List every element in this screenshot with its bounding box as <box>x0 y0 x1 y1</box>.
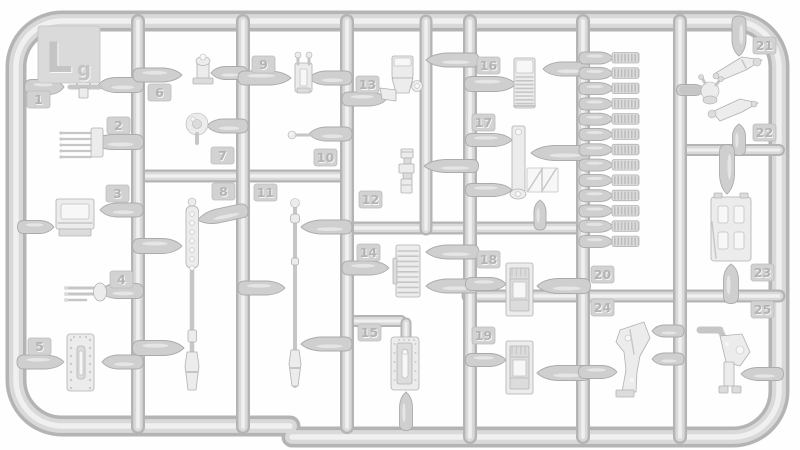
svg-text:9: 9 <box>259 57 268 72</box>
sprue-gate <box>652 353 684 365</box>
sprue-gate <box>720 145 735 195</box>
part-7 <box>186 113 208 143</box>
sprue-gate <box>652 325 684 337</box>
svg-text:22: 22 <box>756 125 773 140</box>
part-number-tab-7: 77 <box>211 147 234 164</box>
part-9 <box>295 52 312 93</box>
part-number-tab-19: 1919 <box>472 327 495 344</box>
svg-text:7: 7 <box>218 148 227 163</box>
sprue-gate <box>309 71 352 85</box>
svg-text:3: 3 <box>113 186 122 201</box>
svg-text:19: 19 <box>475 328 492 343</box>
svg-text:13: 13 <box>359 77 376 92</box>
svg-text:5: 5 <box>35 339 44 354</box>
part-number-tab-15: 1515 <box>358 324 381 341</box>
part-number-tab-11: 1111 <box>254 184 277 201</box>
svg-text:8: 8 <box>219 184 228 199</box>
svg-text:20: 20 <box>594 267 612 282</box>
sprue-gate <box>579 236 613 248</box>
svg-text:15: 15 <box>361 325 378 340</box>
part-number-tab-2: 22 <box>107 117 130 134</box>
svg-text:10: 10 <box>317 150 335 165</box>
sprue-gate <box>537 279 591 294</box>
sprue-gate <box>579 205 613 217</box>
part-19 <box>506 341 533 394</box>
sprue-gate <box>466 184 513 197</box>
part-24 <box>616 322 650 397</box>
sprue-gate <box>102 355 143 369</box>
sprue-gate <box>466 354 507 367</box>
part-number-tab-5: 55 <box>28 338 51 355</box>
svg-text:18: 18 <box>480 252 497 267</box>
part-2 <box>59 128 103 159</box>
sprue-svg: 1122334455667788991010111112121313141415… <box>0 0 800 450</box>
sprue-gate <box>579 144 613 156</box>
sprue-gate <box>741 368 784 381</box>
sprue-gate <box>579 98 613 110</box>
part-18 <box>506 263 533 316</box>
sprue-gate <box>579 190 613 202</box>
part-number-tab-17: 1717 <box>472 114 495 131</box>
sprue-gate <box>579 83 613 95</box>
sprue-gate <box>342 261 389 275</box>
part-number-tab-18: 1818 <box>477 251 500 268</box>
svg-text:24: 24 <box>594 300 612 315</box>
part-3 <box>56 199 94 236</box>
part-number-tab-13: 1313 <box>356 76 379 93</box>
part-number-tab-12: 1212 <box>359 191 382 208</box>
part-number-tab-20: 2020 <box>591 266 614 283</box>
sprue-gate <box>17 355 64 369</box>
sprue-gate <box>207 119 248 133</box>
sprue-gate <box>466 134 513 147</box>
sprue-gate <box>238 281 285 295</box>
sprue-letter-tab: LLgg <box>38 26 100 83</box>
part-8 <box>185 198 199 390</box>
part-number-tab-16: 1616 <box>477 57 500 74</box>
part-number-tab-10: 1010 <box>314 149 337 166</box>
sprue-gate <box>579 159 613 171</box>
part-23 <box>711 193 751 261</box>
svg-text:g: g <box>77 57 91 81</box>
svg-text:4: 4 <box>117 272 126 287</box>
part-6 <box>193 54 213 84</box>
sprue-gate <box>579 67 613 79</box>
part-17 <box>510 126 558 199</box>
sprue-gate <box>133 68 182 82</box>
sprue-gate <box>465 77 517 92</box>
part-ball-mount <box>684 75 724 105</box>
sprue-gate <box>309 127 352 141</box>
sprue-gate <box>133 341 185 356</box>
svg-text:23: 23 <box>754 265 771 280</box>
sprue-gate <box>426 245 479 259</box>
part-11 <box>289 199 301 387</box>
svg-text:12: 12 <box>362 192 379 207</box>
part-number-tab-21: 2121 <box>753 37 776 54</box>
svg-text:2: 2 <box>114 118 123 133</box>
part-number-tab-22: 2222 <box>753 124 776 141</box>
sprue-gate <box>426 53 479 67</box>
sprue-gate <box>133 239 183 254</box>
svg-text:16: 16 <box>480 58 498 73</box>
part-13 <box>380 56 423 101</box>
sprue-gate <box>724 264 739 304</box>
sprue-gate <box>342 92 387 106</box>
part-number-tab-25: 2525 <box>751 301 774 318</box>
svg-text:17: 17 <box>475 115 492 130</box>
part-10 <box>288 131 311 139</box>
sprue-gate <box>534 200 546 230</box>
svg-text:14: 14 <box>360 245 378 260</box>
part-5 <box>67 334 94 391</box>
part-number-tab-9: 99 <box>252 56 275 73</box>
svg-text:1: 1 <box>34 92 43 107</box>
part-number-tab-3: 33 <box>106 185 129 202</box>
part-number-tab-14: 1414 <box>357 244 380 261</box>
part-14 <box>393 245 420 297</box>
sprue-diagram: 1122334455667788991010111112121313141415… <box>0 0 800 450</box>
part-number-tab-1: 11 <box>27 91 50 108</box>
svg-text:6: 6 <box>155 85 164 100</box>
part-number-tab-24: 2424 <box>591 299 614 316</box>
sprue-gate <box>466 278 507 291</box>
svg-text:21: 21 <box>756 38 773 53</box>
sprue-gate <box>301 337 352 351</box>
part-number-tab-6: 66 <box>148 84 171 101</box>
sprue-gate <box>579 220 613 232</box>
part-number-tab-4: 44 <box>110 271 133 288</box>
part-15 <box>391 337 419 390</box>
sprue-gate <box>579 52 613 64</box>
part-number-tab-8: 88 <box>212 183 235 200</box>
sprue-gate <box>301 220 352 234</box>
sprue-gate <box>579 113 613 125</box>
part-25 <box>700 330 750 393</box>
svg-text:L: L <box>46 33 73 82</box>
svg-text:11: 11 <box>257 185 274 200</box>
part-12 <box>399 149 414 193</box>
sprue-gate <box>579 129 613 141</box>
sprue-gate <box>579 174 613 186</box>
sprue-gate <box>424 160 479 173</box>
svg-text:25: 25 <box>754 302 771 317</box>
part-4 <box>64 283 107 302</box>
part-number-tab-23: 2323 <box>751 264 774 281</box>
sprue-gate <box>100 203 143 217</box>
part-16 <box>514 58 535 108</box>
sprue-gate <box>732 16 746 56</box>
part-20 <box>612 53 640 247</box>
sprue-gate <box>579 366 618 379</box>
sprue-gate <box>18 221 55 234</box>
sprue-gate <box>400 392 413 431</box>
